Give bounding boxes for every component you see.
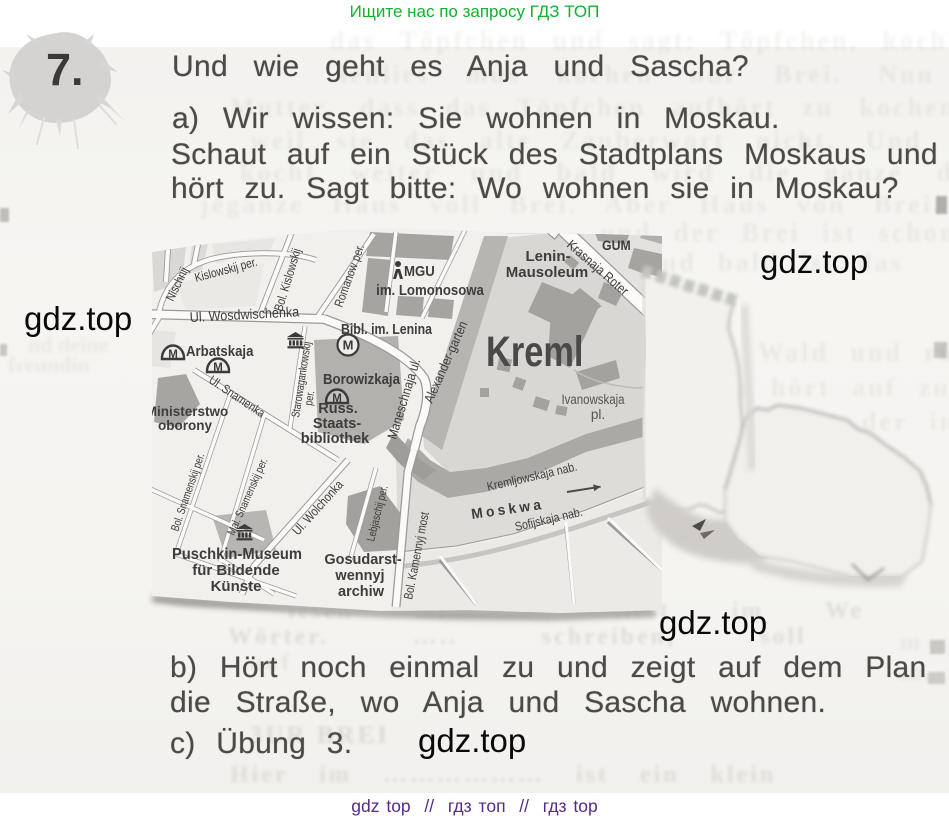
svg-text:im. Lomonosowa: im. Lomonosowa (376, 281, 484, 298)
svg-text:M: M (343, 338, 354, 353)
svg-text:Staats-: Staats- (313, 416, 362, 432)
svg-text:Russ.: Russ. (318, 401, 358, 417)
svg-text:per.: per. (303, 390, 317, 407)
svg-text:MGU: MGU (404, 262, 435, 279)
svg-text:Bibl. im. Lenina: Bibl. im. Lenina (341, 321, 432, 337)
svg-text:archiw: archiw (338, 584, 385, 600)
svg-text:bibliothek: bibliothek (301, 431, 370, 447)
svg-text:wennyj: wennyj (334, 568, 384, 584)
svg-text:Künste: Künste (211, 578, 262, 595)
svg-text:M: M (168, 349, 178, 361)
svg-text:Kreml: Kreml (486, 328, 583, 375)
svg-text:Borowizkaja: Borowizkaja (323, 370, 400, 387)
svg-text:Ministerstwo: Ministerstwo (146, 404, 228, 419)
svg-text:oborony: oborony (158, 418, 212, 433)
svg-text:Gosudarst-: Gosudarst- (324, 552, 402, 568)
svg-text:M: M (213, 362, 223, 374)
svg-text:Arbatskaja: Arbatskaja (186, 342, 254, 359)
svg-text:für Bildende: für Bildende (192, 562, 280, 579)
svg-text:Puschkin-Museum: Puschkin-Museum (172, 546, 302, 563)
svg-text:Lenin-: Lenin- (526, 248, 571, 265)
svg-text:Mausoleum: Mausoleum (506, 264, 589, 281)
